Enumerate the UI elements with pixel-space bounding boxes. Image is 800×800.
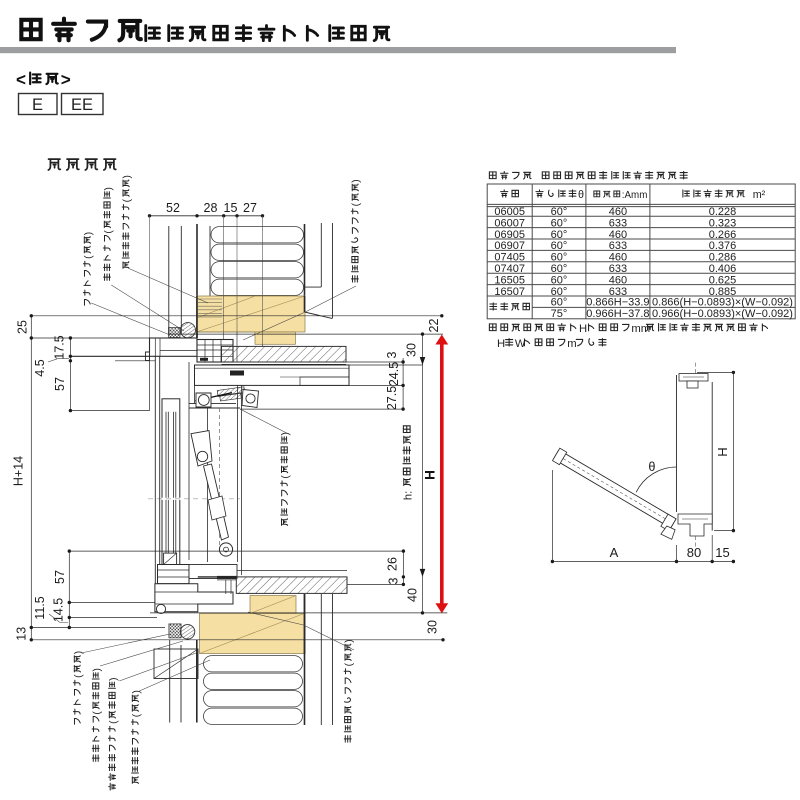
svg-text:θ: θ (578, 189, 584, 201)
svg-text:(: ( (344, 662, 355, 666)
svg-text:3: 3 (386, 577, 400, 584)
svg-text:0.228: 0.228 (709, 206, 737, 218)
svg-text:0.323: 0.323 (709, 217, 737, 229)
svg-text:): ) (83, 232, 94, 235)
svg-text:): ) (122, 175, 133, 178)
svg-text:27: 27 (243, 201, 257, 215)
svg-text:60°: 60° (551, 229, 568, 241)
svg-text:h:: h: (403, 491, 415, 500)
svg-text:0.966(H−0.0893)×(W−0.092): 0.966(H−0.0893)×(W−0.092) (652, 308, 793, 320)
svg-text:60°: 60° (551, 274, 568, 286)
svg-text:(: ( (351, 202, 362, 206)
svg-text:>: > (61, 71, 71, 90)
svg-text:H+14: H+14 (12, 456, 26, 486)
svg-text:0.406: 0.406 (709, 263, 737, 275)
svg-text:A: A (610, 545, 619, 560)
svg-text:460: 460 (609, 252, 627, 264)
svg-text:633: 633 (609, 217, 627, 229)
svg-text:57: 57 (53, 377, 67, 391)
svg-text:24.5: 24.5 (387, 362, 401, 386)
svg-text:07407: 07407 (494, 263, 525, 275)
svg-text:52: 52 (166, 201, 180, 215)
svg-text:06907: 06907 (494, 240, 525, 252)
svg-text:06905: 06905 (494, 229, 525, 241)
svg-text:<: < (16, 71, 26, 90)
svg-text:17.5: 17.5 (53, 335, 67, 359)
svg-text:H: H (497, 338, 505, 350)
svg-text:(: ( (73, 674, 84, 678)
svg-text:(: ( (131, 713, 142, 717)
svg-text:60°: 60° (551, 206, 568, 218)
svg-text:40: 40 (405, 588, 419, 602)
svg-text:06005: 06005 (494, 206, 525, 218)
svg-text:(: ( (92, 711, 103, 715)
svg-text:): ) (92, 668, 103, 671)
svg-text:16505: 16505 (494, 274, 525, 286)
svg-text:60°: 60° (551, 252, 568, 264)
svg-text:15: 15 (224, 201, 238, 215)
svg-text:27.5: 27.5 (385, 386, 399, 410)
svg-text:60°: 60° (551, 297, 568, 309)
svg-text:460: 460 (609, 229, 627, 241)
svg-text:57: 57 (53, 570, 67, 584)
svg-text:60°: 60° (551, 263, 568, 275)
svg-text:0.866(H−0.0893)×(W−0.092): 0.866(H−0.0893)×(W−0.092) (652, 297, 793, 309)
svg-text:460: 460 (609, 274, 627, 286)
svg-text:E: E (32, 96, 43, 114)
svg-text:): ) (103, 187, 114, 190)
svg-text:13: 13 (15, 627, 29, 641)
svg-text:0.625: 0.625 (709, 274, 737, 286)
svg-text:28: 28 (204, 201, 218, 215)
svg-text:0.376: 0.376 (709, 240, 737, 252)
svg-text:60°: 60° (551, 217, 568, 229)
svg-text:0.966H−37.8: 0.966H−37.8 (586, 308, 649, 320)
svg-text:460: 460 (609, 206, 627, 218)
svg-text:26: 26 (385, 557, 399, 571)
svg-text:4.5: 4.5 (33, 359, 47, 376)
svg-text:16507: 16507 (494, 286, 525, 298)
svg-text:633: 633 (609, 240, 627, 252)
svg-text:H: H (423, 470, 438, 480)
svg-text:07405: 07405 (494, 252, 525, 264)
svg-text:): ) (351, 179, 362, 182)
svg-text:(: ( (108, 720, 119, 724)
svg-text:11.5: 11.5 (33, 596, 47, 619)
svg-text:(: ( (281, 475, 292, 479)
svg-text:14.5: 14.5 (52, 598, 66, 622)
svg-text:): ) (108, 677, 119, 680)
svg-text:H: H (715, 447, 730, 456)
svg-text:m²: m² (753, 189, 766, 201)
svg-text:H: H (579, 323, 587, 335)
svg-text:(: ( (83, 255, 94, 259)
svg-text:15: 15 (715, 545, 729, 560)
svg-text::Amm: :Amm (622, 190, 648, 201)
svg-text:θ: θ (648, 460, 655, 474)
svg-text:EE: EE (71, 96, 93, 114)
svg-text:(: ( (122, 198, 133, 202)
svg-text:75°: 75° (551, 308, 568, 320)
svg-text:0.286: 0.286 (709, 252, 737, 264)
svg-text:633: 633 (609, 263, 627, 275)
svg-text:0.866H−33.9: 0.866H−33.9 (586, 297, 649, 309)
svg-text:30: 30 (426, 620, 440, 634)
svg-text:(: ( (103, 230, 114, 234)
svg-text:60°: 60° (551, 240, 568, 252)
svg-text:30: 30 (405, 343, 419, 357)
svg-text:06007: 06007 (494, 217, 525, 229)
svg-text:3: 3 (385, 351, 399, 358)
svg-text:m: m (567, 338, 576, 350)
svg-text:25: 25 (16, 320, 30, 334)
svg-text:80: 80 (687, 545, 701, 560)
svg-text:22: 22 (427, 319, 441, 333)
svg-text:0.266: 0.266 (709, 229, 737, 241)
